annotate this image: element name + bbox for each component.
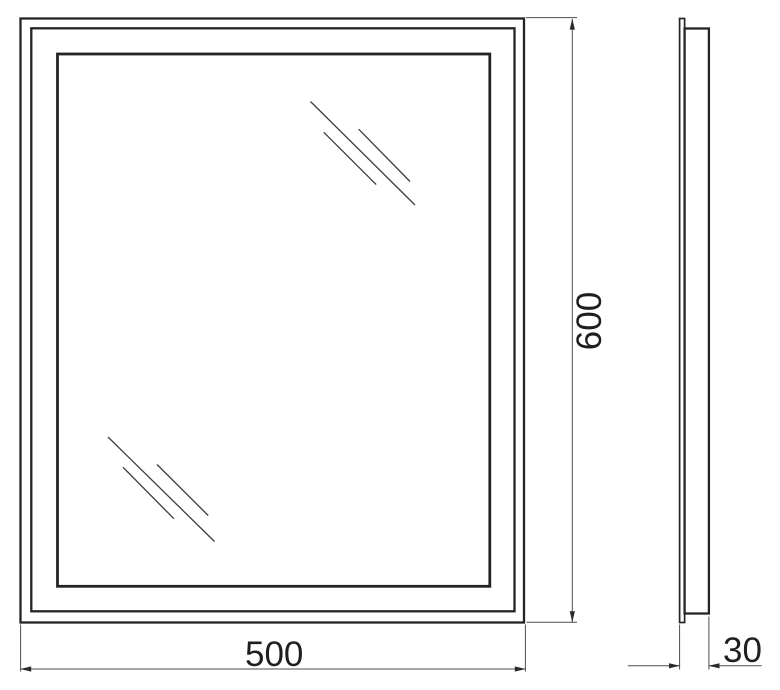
- svg-text:30: 30: [723, 631, 762, 670]
- svg-text:600: 600: [570, 292, 609, 350]
- svg-text:500: 500: [245, 635, 303, 674]
